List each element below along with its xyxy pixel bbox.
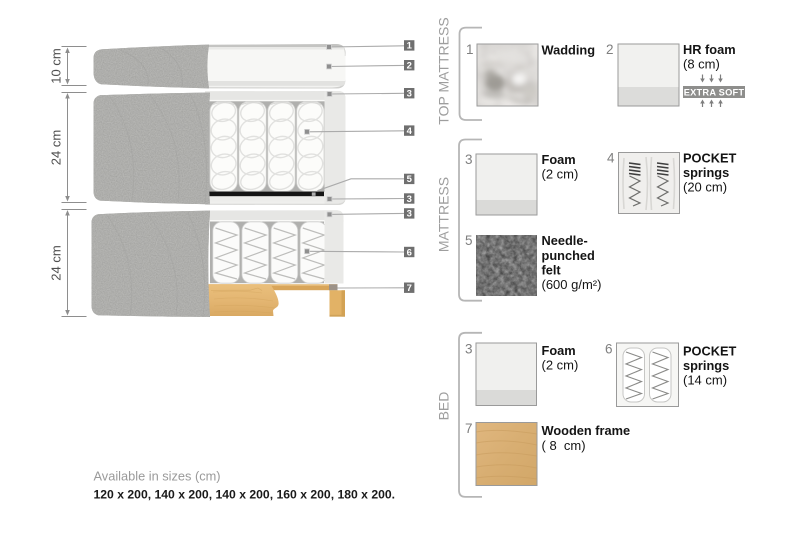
- svg-text:(2 cm): (2 cm): [542, 167, 579, 182]
- svg-text:24 cm: 24 cm: [48, 130, 63, 165]
- svg-text:(600 g/m²): (600 g/m²): [542, 277, 602, 292]
- svg-text:5: 5: [407, 174, 413, 185]
- svg-text:5: 5: [465, 233, 473, 248]
- svg-text:4: 4: [407, 126, 413, 137]
- svg-text:Available in sizes (cm): Available in sizes (cm): [94, 469, 221, 484]
- svg-text:3: 3: [465, 341, 473, 356]
- svg-text:7: 7: [465, 421, 473, 436]
- svg-text:Foam: Foam: [542, 152, 576, 167]
- svg-text:springs: springs: [683, 165, 729, 180]
- svg-text:3: 3: [465, 152, 473, 167]
- svg-text:Needle-: Needle-: [542, 233, 588, 248]
- svg-text:3: 3: [407, 89, 412, 100]
- svg-text:springs: springs: [683, 358, 729, 373]
- svg-text:POCKET: POCKET: [683, 344, 737, 359]
- svg-text:HR foam: HR foam: [683, 42, 736, 57]
- svg-text:( 8 cm): ( 8 cm): [542, 438, 586, 453]
- svg-text:3: 3: [407, 194, 412, 205]
- svg-text:120 x 200, 140 x 200, 140 x 20: 120 x 200, 140 x 200, 140 x 200, 160 x 2…: [94, 488, 396, 502]
- svg-text:felt: felt: [542, 263, 562, 278]
- svg-text:(2 cm): (2 cm): [542, 357, 579, 372]
- svg-text:(14 cm): (14 cm): [683, 373, 727, 388]
- svg-text:7: 7: [407, 283, 412, 294]
- svg-text:10 cm: 10 cm: [48, 48, 63, 83]
- svg-text:BED: BED: [436, 392, 452, 421]
- svg-text:POCKET: POCKET: [683, 151, 737, 166]
- svg-text:(8 cm): (8 cm): [683, 57, 720, 72]
- svg-text:2: 2: [606, 42, 614, 57]
- svg-text:6: 6: [605, 341, 613, 356]
- svg-text:1: 1: [466, 42, 474, 57]
- svg-text:1: 1: [407, 41, 413, 52]
- svg-text:punched: punched: [542, 248, 595, 263]
- svg-text:(20 cm): (20 cm): [683, 180, 727, 195]
- svg-text:TOP MATTRESS: TOP MATTRESS: [436, 17, 452, 124]
- svg-text:Foam: Foam: [542, 343, 576, 358]
- svg-text:6: 6: [407, 247, 412, 258]
- svg-text:Wadding: Wadding: [542, 42, 596, 57]
- svg-text:MATTRESS: MATTRESS: [436, 177, 452, 252]
- svg-text:Wooden frame: Wooden frame: [542, 423, 631, 438]
- svg-text:EXTRA SOFT: EXTRA SOFT: [684, 87, 745, 97]
- svg-text:3: 3: [407, 209, 412, 220]
- svg-text:4: 4: [607, 151, 615, 166]
- svg-text:24 cm: 24 cm: [48, 245, 63, 280]
- svg-text:2: 2: [407, 61, 412, 72]
